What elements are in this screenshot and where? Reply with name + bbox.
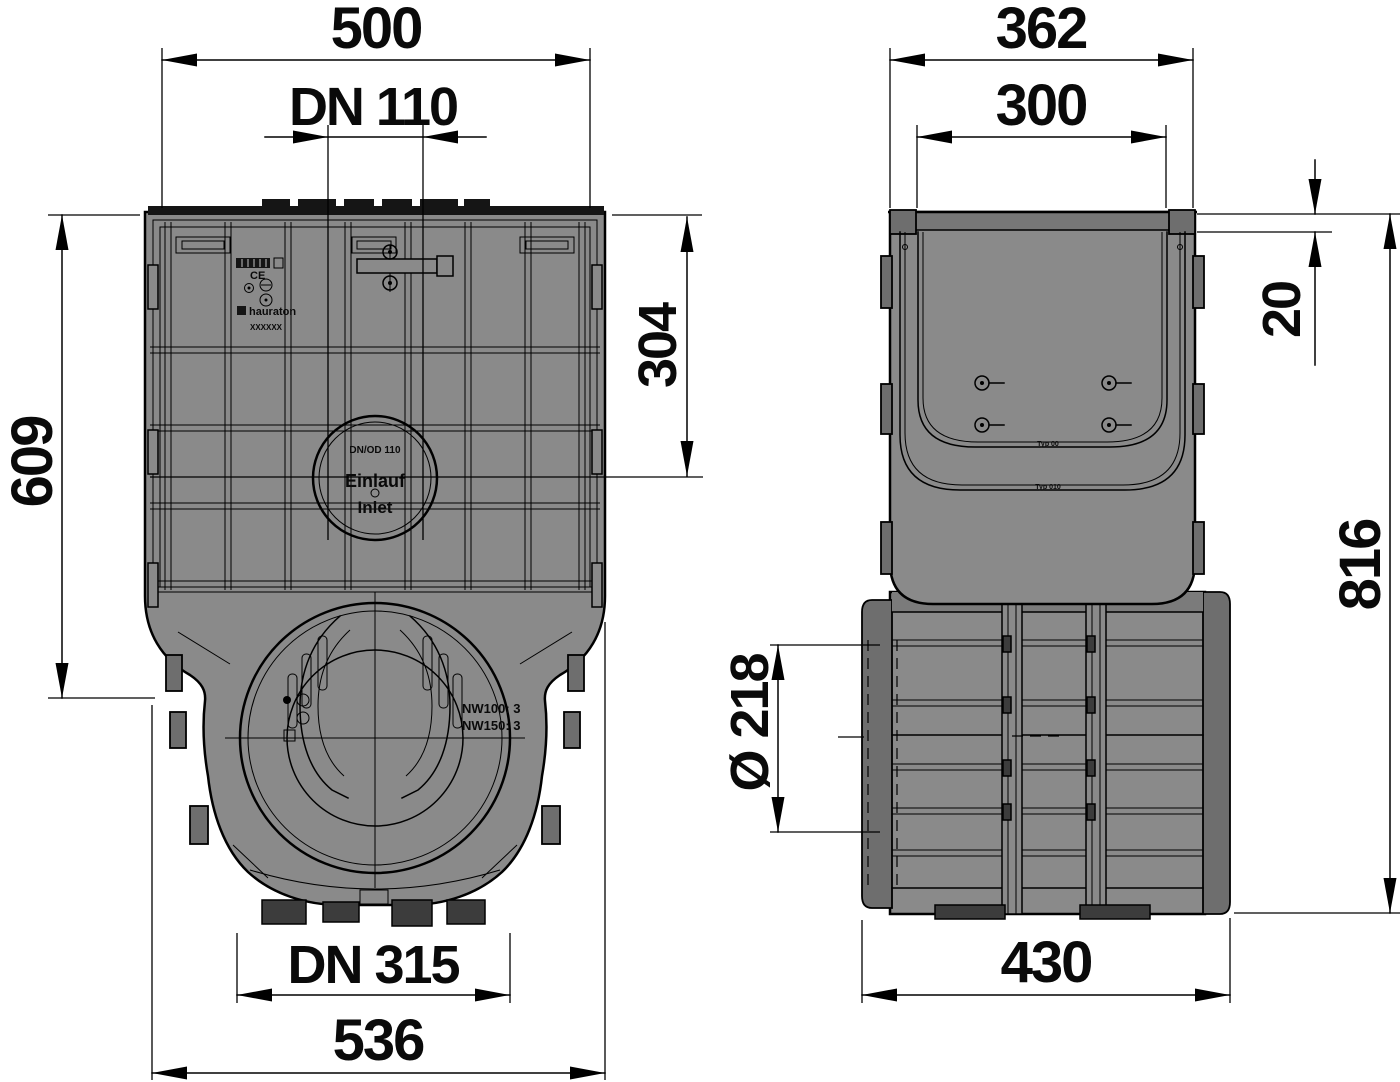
dim-front-inlet-label: DN 110 (289, 77, 457, 137)
side-box: Typ 00 Typ 010 (881, 210, 1204, 604)
dim-side-inner-width: 300 (917, 73, 1166, 208)
dim-side-edge-height: 20 (1197, 160, 1400, 365)
brand-label: hauraton (249, 306, 296, 318)
typ-upper-label: Typ 00 (1037, 441, 1059, 448)
dim-side-edge-height-label: 20 (1252, 282, 1312, 338)
drainage-unit-drawing: CE hauraton XXXXXX DN/OD 110 Einlauf Inl… (0, 0, 1400, 1082)
dim-front-outlet: DN 315 (237, 933, 510, 1003)
typ-lower-label: Typ 010 (1035, 484, 1061, 491)
inlet-label-de: Einlauf (345, 471, 406, 491)
dim-side-base-width: 430 (862, 918, 1230, 1003)
outlet-marking-line2: NW150: 3 (462, 718, 521, 733)
dim-side-inner-width-label: 300 (996, 73, 1087, 138)
dim-front-outlet-label: DN 315 (287, 935, 459, 995)
dim-side-outlet-diameter: Ø 218 (720, 645, 880, 832)
drum-right-cap (1203, 592, 1230, 914)
box-top-lip (890, 212, 1195, 230)
serial-label: XXXXXX (250, 323, 283, 332)
side-drum (862, 592, 1230, 919)
inlet-label-en: Inlet (358, 498, 393, 517)
box-body (890, 212, 1195, 604)
dim-front-width-bottom-label: 536 (333, 1008, 425, 1073)
dim-front-height: 609 (0, 215, 155, 698)
drum-left-cap (862, 600, 892, 908)
technical-drawing-page: CE hauraton XXXXXX DN/OD 110 Einlauf Inl… (0, 0, 1400, 1082)
dim-side-width-top-label: 362 (996, 0, 1087, 61)
outlet-marking-line1: NW100: 3 (462, 701, 521, 716)
front-view: CE hauraton XXXXXX DN/OD 110 Einlauf Inl… (0, 0, 703, 1080)
dim-side-base-width-label: 430 (1001, 930, 1092, 995)
barcode (236, 258, 270, 268)
dim-front-height-label: 609 (0, 416, 65, 508)
dim-side-total-height-label: 816 (1328, 519, 1393, 611)
inlet-size-label: DN/OD 110 (349, 445, 401, 456)
grate-top-edge (148, 199, 604, 215)
dim-side-outlet-diameter-label: Ø 218 (720, 653, 780, 791)
dim-front-width-top-label: 500 (331, 0, 422, 61)
brand-logo-icon (237, 306, 246, 315)
side-view: Typ 00 Typ 010 362 300 (720, 0, 1400, 1003)
dim-front-inlet-offset-label: 304 (628, 302, 688, 388)
